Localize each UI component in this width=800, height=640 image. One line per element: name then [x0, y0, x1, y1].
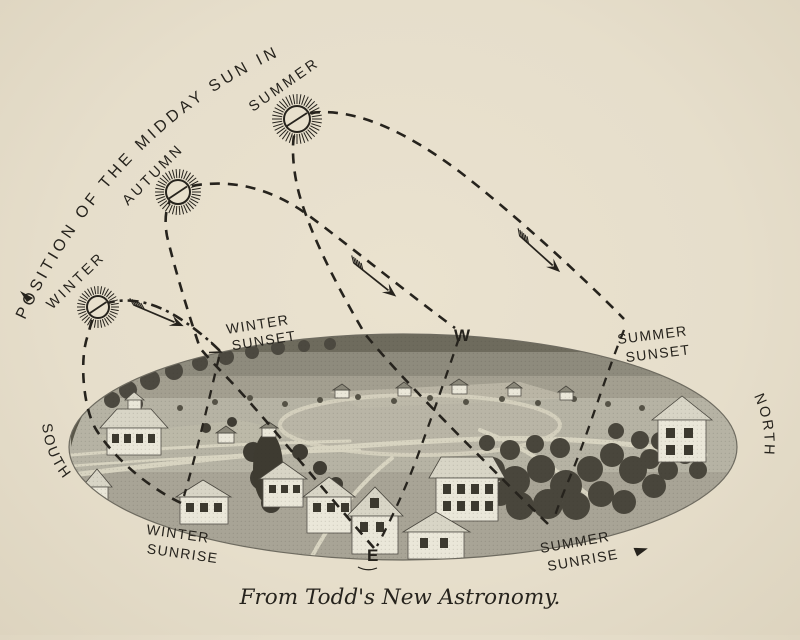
label-summer-sunset: SUMMER SUNSET: [616, 322, 691, 365]
label-east: E: [367, 546, 379, 565]
winter-setting-path: [104, 300, 220, 351]
east-underline-mark: [358, 567, 377, 570]
label-north-text: NORTH: [750, 391, 776, 457]
label-west: W: [454, 326, 471, 345]
figure-caption: From Todd's New Astronomy.: [239, 585, 561, 610]
autumn-setting-path: [192, 184, 455, 328]
sunrise-arrow-icon: [634, 545, 649, 556]
feathered-arrow-icon: [345, 255, 399, 301]
feathered-arrow-icon: [126, 297, 186, 331]
winter-sun-icon: [77, 286, 119, 328]
sun-path-diagram: POSITION OF THE MIDDAY SUN IN WINTER AUT…: [0, 0, 800, 635]
book-page: { "figure": { "title_curved": "POSITION …: [0, 0, 800, 635]
summer-sun-icon: [272, 94, 322, 144]
label-north: NORTH: [750, 391, 776, 457]
summer-setting-path: [310, 112, 624, 319]
